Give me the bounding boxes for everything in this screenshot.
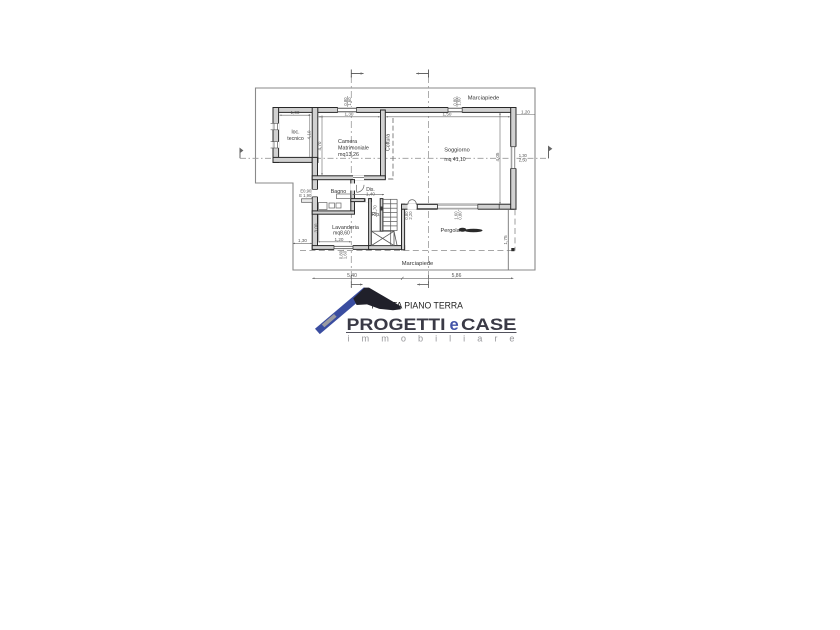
svg-text:CASE: CASE bbox=[461, 316, 517, 334]
svg-text:1,00: 1,00 bbox=[291, 110, 300, 115]
svg-text:4,05: 4,05 bbox=[495, 152, 500, 161]
svg-text:1,60: 1,60 bbox=[343, 250, 348, 259]
svg-text:e: e bbox=[450, 316, 459, 334]
svg-text:4,70: 4,70 bbox=[317, 141, 322, 150]
svg-text:PROGETTI: PROGETTI bbox=[347, 316, 446, 334]
svg-text:0,80: 0,80 bbox=[458, 211, 463, 220]
svg-text:Marciapiede: Marciapiede bbox=[402, 261, 434, 267]
svg-text:immobiliare: immobiliare bbox=[348, 334, 515, 344]
svg-text:5,86: 5,86 bbox=[452, 273, 462, 279]
svg-text:1,40: 1,40 bbox=[366, 191, 375, 196]
svg-text:Pergola: Pergola bbox=[441, 228, 461, 234]
svg-text:Bagno: Bagno bbox=[331, 189, 347, 195]
svg-text:Soggiorno: Soggiorno bbox=[444, 147, 470, 153]
svg-text:Matrimoniale: Matrimoniale bbox=[338, 146, 369, 152]
svg-text:1,20: 1,20 bbox=[521, 110, 530, 115]
svg-text:1,20: 1,20 bbox=[335, 237, 344, 242]
svg-text:tecnico: tecnico bbox=[287, 136, 304, 142]
svg-text:2,20: 2,20 bbox=[408, 211, 413, 220]
svg-text:4,10: 4,10 bbox=[306, 130, 311, 139]
svg-text:1,30: 1,30 bbox=[298, 238, 307, 243]
svg-text:5,40: 5,40 bbox=[347, 273, 357, 279]
svg-text:Cottura: Cottura bbox=[386, 134, 392, 151]
svg-text:mq 41,10: mq 41,10 bbox=[444, 157, 465, 163]
svg-text:Marciapiede: Marciapiede bbox=[468, 96, 500, 102]
svg-text:mq8,60: mq8,60 bbox=[333, 231, 350, 237]
svg-text:Camera: Camera bbox=[338, 139, 357, 145]
svg-text:E 1,90: E 1,90 bbox=[299, 193, 312, 198]
svg-text:2,50: 2,50 bbox=[519, 158, 528, 163]
svg-text:1,75: 1,75 bbox=[503, 235, 509, 245]
svg-text:3,00: 3,00 bbox=[314, 223, 319, 232]
svg-text:1,30: 1,30 bbox=[345, 112, 354, 117]
svg-text:1,70: 1,70 bbox=[373, 205, 378, 214]
svg-text:1,50: 1,50 bbox=[443, 112, 452, 117]
svg-text:mq13,26: mq13,26 bbox=[338, 152, 359, 158]
svg-text:loc.: loc. bbox=[291, 130, 299, 136]
